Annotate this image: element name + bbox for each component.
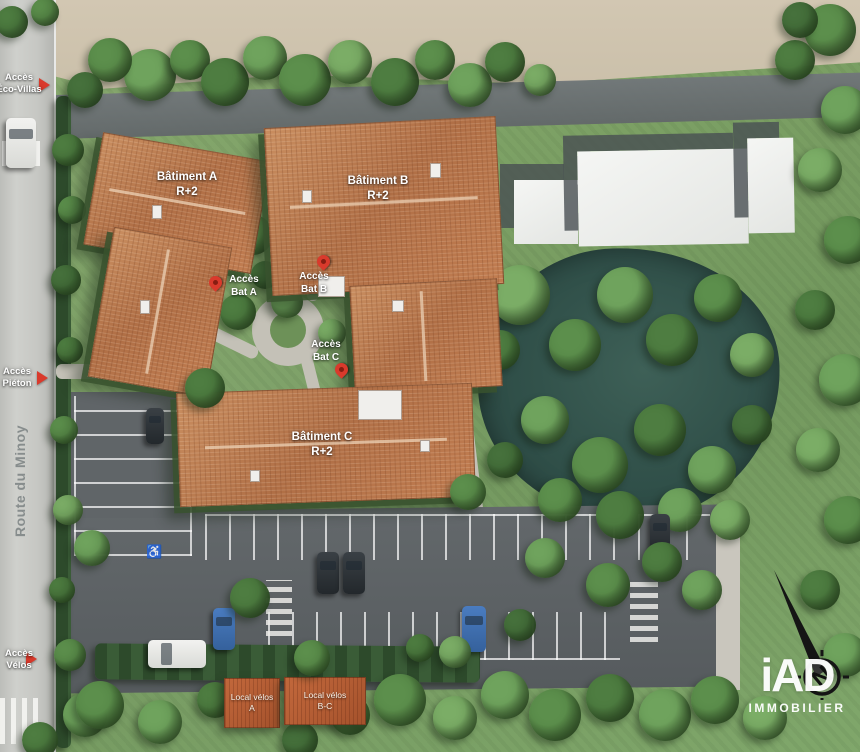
- car-windshield: [465, 616, 483, 625]
- existing-building-right: [747, 138, 795, 234]
- site-plan: ♿ Local vélosA Local vélosB-C Bâtiment A: [0, 0, 860, 752]
- tree: [74, 530, 110, 566]
- bike-shed-label: B-C: [304, 701, 347, 712]
- tree: [821, 86, 860, 134]
- car-windshield: [346, 561, 362, 569]
- building-name: Bâtiment B: [318, 174, 438, 189]
- tree: [22, 722, 58, 752]
- building-name: Bâtiment A: [127, 170, 247, 185]
- tree: [688, 446, 736, 494]
- car-windshield: [653, 523, 667, 531]
- iad-immobilier-logo: iAD IMMOBILIER: [738, 652, 856, 715]
- access-line: Bat B: [288, 283, 340, 296]
- car-windshield: [161, 643, 173, 665]
- tree: [782, 2, 818, 38]
- tree: [485, 42, 525, 82]
- tree: [732, 405, 772, 445]
- existing-building-small: [514, 180, 578, 244]
- tree: [525, 538, 565, 578]
- tree: [504, 609, 536, 641]
- car-windshield: [149, 416, 161, 423]
- roof-window: [392, 300, 404, 312]
- tree: [415, 40, 455, 80]
- site-access-pieton-label: Accès Piéton: [0, 366, 46, 391]
- access-bat-c-label: Accès Bat C: [300, 338, 352, 364]
- tree: [819, 354, 860, 406]
- tree: [694, 274, 742, 322]
- access-line: Accès: [218, 273, 270, 286]
- roof-window: [152, 205, 162, 219]
- building-a-label: Bâtiment A R+2: [127, 170, 247, 200]
- tree: [374, 674, 426, 726]
- site-access-velos-label: Accès Vélos: [0, 648, 54, 673]
- tree: [521, 396, 569, 444]
- existing-building-large: [577, 149, 749, 247]
- tree: [138, 700, 182, 744]
- car: [317, 552, 339, 594]
- tree: [682, 570, 722, 610]
- bike-shed-label: Local vélos: [231, 692, 274, 703]
- tree: [524, 64, 556, 96]
- tree: [49, 577, 75, 603]
- car-windshield: [216, 617, 232, 625]
- tree: [487, 442, 523, 478]
- bike-shed-label: Local vélos: [304, 690, 347, 701]
- tree: [796, 428, 840, 472]
- building-floors: R+2: [262, 445, 382, 460]
- building-c-entry: [358, 390, 402, 420]
- roof-window: [302, 190, 312, 203]
- access-line: Vélos: [0, 660, 54, 672]
- tree: [58, 196, 86, 224]
- building-c-label: Bâtiment C R+2: [262, 430, 382, 460]
- tree: [798, 148, 842, 192]
- tree: [538, 478, 582, 522]
- car: [148, 640, 206, 668]
- tree: [50, 416, 78, 444]
- tree: [824, 496, 860, 544]
- tree: [572, 437, 628, 493]
- roof-window: [250, 470, 260, 482]
- tree: [230, 578, 270, 618]
- tree: [67, 72, 103, 108]
- crosswalk: [630, 582, 658, 642]
- street-name-label: Route du Minoy: [12, 421, 28, 541]
- building-floors: R+2: [127, 185, 247, 200]
- bike-shed-a: Local vélosA: [224, 678, 280, 728]
- access-line: Bat C: [300, 351, 352, 364]
- tree: [371, 58, 419, 106]
- building-floors: R+2: [318, 189, 438, 204]
- tree: [586, 563, 630, 607]
- tree: [642, 542, 682, 582]
- tree: [691, 676, 739, 724]
- access-line: Bat A: [218, 286, 270, 299]
- access-line: Accès: [300, 338, 352, 351]
- access-line: Accès: [0, 72, 48, 84]
- tree: [76, 681, 124, 729]
- tree: [57, 337, 83, 363]
- access-line: Éco-Villas: [0, 84, 48, 96]
- building-b-label: Bâtiment B R+2: [318, 174, 438, 204]
- tree: [220, 294, 256, 330]
- tree: [586, 674, 634, 722]
- tree: [646, 314, 698, 366]
- tree: [51, 265, 81, 295]
- tree: [634, 404, 686, 456]
- access-line: Accès: [0, 648, 54, 660]
- roof-window: [420, 440, 430, 452]
- tree: [185, 368, 225, 408]
- roof-ridge: [419, 292, 427, 381]
- tree: [282, 722, 318, 752]
- tree: [549, 319, 601, 371]
- tree: [54, 639, 86, 671]
- car: [213, 608, 235, 650]
- tree: [529, 689, 581, 741]
- tree: [406, 634, 434, 662]
- tree: [448, 63, 492, 107]
- building-b-roof: [264, 116, 504, 296]
- tree: [328, 40, 372, 84]
- accessible-parking-icon: ♿: [146, 545, 162, 558]
- car-windshield: [320, 561, 336, 569]
- access-bat-b-label: Accès Bat B: [288, 270, 340, 296]
- car: [146, 408, 164, 444]
- roof-window: [140, 300, 150, 314]
- building-name: Bâtiment C: [262, 430, 382, 445]
- tree: [710, 500, 750, 540]
- tree: [824, 216, 860, 264]
- tree: [730, 333, 774, 377]
- tree: [433, 696, 477, 740]
- tree: [597, 267, 653, 323]
- bike-shed-bc: Local vélosB-C: [284, 677, 366, 725]
- tree: [53, 495, 83, 525]
- site-access-eco-villas-label: Accès Éco-Villas: [0, 72, 48, 97]
- tree: [294, 640, 330, 676]
- crosswalk: [266, 580, 292, 636]
- tree: [596, 491, 644, 539]
- tree: [639, 689, 691, 741]
- tree: [481, 671, 529, 719]
- tree: [439, 636, 471, 668]
- car: [343, 552, 365, 594]
- car: [6, 118, 36, 168]
- tree: [52, 134, 84, 166]
- access-line: Accès: [0, 366, 46, 378]
- building-b-roof-wing: [349, 278, 502, 394]
- tree: [279, 54, 331, 106]
- logo-text: iAD: [738, 652, 856, 698]
- logo-subtitle: IMMOBILIER: [738, 701, 856, 715]
- car-windshield: [9, 129, 33, 139]
- tree: [795, 290, 835, 330]
- access-line: Piéton: [0, 378, 46, 390]
- tree: [775, 40, 815, 80]
- tree: [450, 474, 486, 510]
- tree: [201, 58, 249, 106]
- access-line: Accès: [288, 270, 340, 283]
- access-bat-a-label: Accès Bat A: [218, 273, 270, 299]
- bike-shed-label: A: [231, 703, 274, 714]
